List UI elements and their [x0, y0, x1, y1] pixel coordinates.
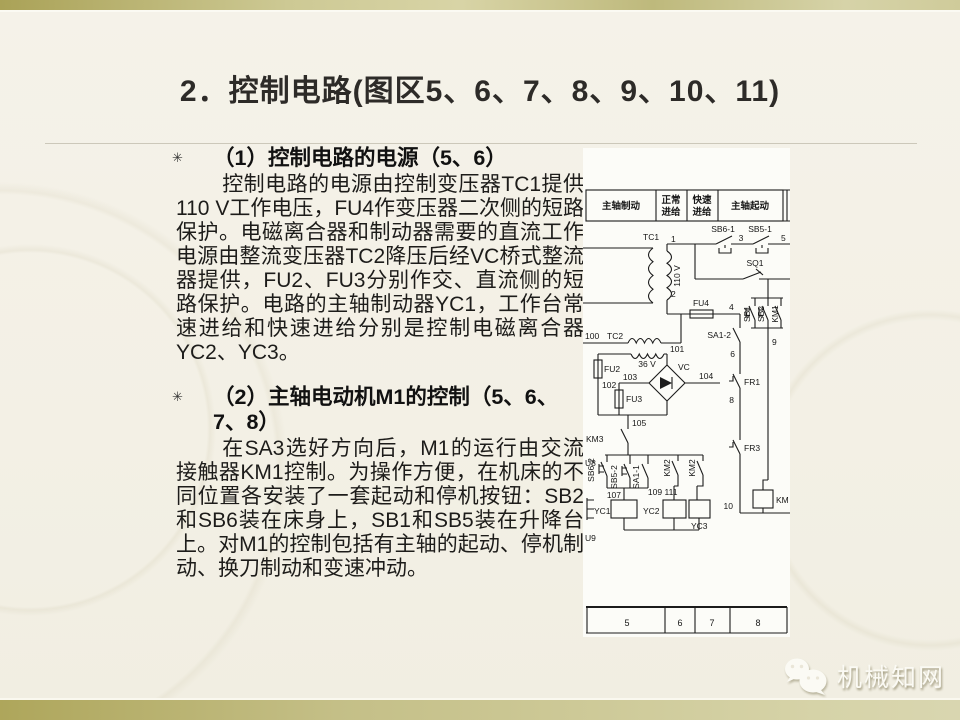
wire-number-6: 6 [730, 349, 735, 359]
zone-header-row: 主轴制动 正常 进给 快速 进给 主轴起动 [586, 190, 790, 221]
wire-number-9: 9 [772, 337, 777, 347]
wire-number-5: 5 [781, 233, 786, 243]
wire-number-109: 109 [648, 487, 662, 497]
wire-number-104: 104 [699, 371, 713, 381]
label-yc2: YC2 [643, 506, 660, 516]
wire-number-102: 102 [602, 380, 616, 390]
header-rapid-feed-line2: 进给 [692, 206, 712, 218]
wire-number-1: 1 [671, 234, 676, 244]
control-circuit-diagram: 主轴制动 正常 进给 快速 进给 主轴起动 TC1 1 2 110 V [583, 148, 790, 637]
label-km3: KM3 [586, 434, 604, 444]
wechat-icon [782, 655, 830, 697]
bullet-marker-icon: ✳ [166, 146, 213, 170]
label-km1: KM1 [770, 305, 780, 323]
zone-5: 5 [624, 618, 629, 628]
wire-number-101: 101 [670, 344, 684, 354]
bottom-accent-band [0, 698, 960, 720]
zone-6: 6 [677, 618, 682, 628]
presentation-slide: 2．控制电路(图区5、6、7、8、9、10、11) ✳ （1）控制电路的电源（5… [0, 0, 960, 720]
bullet-1: ✳ （1）控制电路的电源（5、6） [166, 146, 584, 171]
wire-number-107: 107 [607, 490, 621, 500]
label-sb5-2: SB5-2 [609, 465, 619, 489]
label-fr3: FR3 [744, 443, 760, 453]
brand-watermark: 机械知网 [782, 654, 945, 698]
header-spindle-start: 主轴起动 [731, 200, 770, 212]
label-36v: 36 V [638, 359, 656, 369]
wire-number-105: 105 [632, 418, 646, 428]
wire-number-4: 4 [729, 302, 734, 312]
label-sa1-1: SA1-1 [631, 465, 641, 489]
header-spindle-brake: 主轴制动 [602, 200, 641, 212]
header-normal-feed-line1: 正常 [661, 194, 680, 206]
limit-switch-sq1: SQ1 [695, 244, 790, 279]
title-divider [45, 143, 917, 144]
body-text-column: ✳ （1）控制电路的电源（5、6） 控制电路的电源由控制变压器TC1提供110 … [166, 146, 584, 601]
contact-km3: KM3 105 [586, 415, 646, 455]
clutch-branch-contacts: SB6-2 SB5-2 SA1-1 KM2 KM2 107 109 111 [586, 455, 703, 500]
slide-title: 2．控制电路(图区5、6、7、8、9、10、11) [40, 66, 920, 110]
wire-number-103: 103 [623, 372, 637, 382]
contact-chain-sa1-2-fr1-fr3: SA1-2 6 FR1 8 FR3 [707, 314, 760, 513]
brand-name: 机械知网 [837, 658, 945, 694]
zone-8: 8 [755, 618, 760, 628]
label-sq1: SQ1 [746, 258, 763, 268]
label-sb5-1: SB5-1 [748, 224, 772, 234]
stop-buttons-sb6-1-sb5-1: SB6-1 3 SB5-1 5 [667, 224, 790, 253]
label-sb6-1: SB6-1 [711, 224, 735, 234]
zone-number-strip: 5 6 7 8 [586, 607, 787, 633]
header-rapid-feed-line1: 快速 [692, 194, 712, 206]
label-fu4: FU4 [693, 298, 709, 308]
wire-number-100: 100 [585, 331, 599, 341]
label-vc: VC [678, 362, 690, 372]
label-km: KM [776, 495, 789, 505]
label-110v: 110 V [672, 265, 682, 287]
label-fu2: FU2 [604, 364, 620, 374]
wire-number-8: 8 [729, 395, 734, 405]
top-accent-band [0, 0, 960, 12]
label-yc1: YC1 [594, 506, 611, 516]
label-tc1: TC1 [643, 232, 659, 242]
fuses-fu2-fu3: FU2 102 103 FU3 [594, 354, 667, 415]
bullet-1-heading: （1）控制电路的电源（5、6） [213, 146, 507, 171]
circuit-schematic: 主轴制动 正常 进给 快速 进给 主轴起动 TC1 1 2 110 V [583, 148, 790, 637]
wire-number-3: 3 [739, 233, 744, 243]
bridge-rectifier-vc: VC 104 [649, 362, 720, 415]
bullet-2-body: 在SA3选好方向后，M1的运行由交流接触器KM1控制。为操作方便，在机床的不同位… [176, 437, 584, 581]
label-sb2: SB2 [756, 306, 766, 322]
wire-number-2: 2 [671, 289, 676, 299]
label-km2-b: KM2 [687, 459, 697, 477]
wire-number-10: 10 [724, 501, 734, 511]
bullet-marker-icon: ✳ [166, 385, 213, 409]
bullet-2-heading: （2）主轴电动机M1的控制（5、6、7、8） [213, 385, 584, 435]
zone-7: 7 [709, 618, 714, 628]
wire-number-u9: U9 [585, 533, 596, 543]
label-sb1: SB1 [742, 306, 752, 322]
bullet-1-body: 控制电路的电源由控制变压器TC1提供110 V工作电压，FU4作变压器二次侧的短… [176, 173, 584, 365]
label-sa1-2: SA1-2 [707, 330, 731, 340]
bullet-2: ✳ （2）主轴电动机M1的控制（5、6、7、8） [166, 385, 584, 435]
label-fr1: FR1 [744, 377, 760, 387]
wire-number-u8: U8 [585, 458, 596, 468]
label-fu3: FU3 [626, 394, 642, 404]
label-km2-a: KM2 [662, 459, 672, 477]
label-tc2: TC2 [607, 331, 623, 341]
start-buttons-sb1-sb2-km1: SB1 SB2 KM1 9 [742, 279, 783, 347]
wire-number-111: 111 [665, 487, 678, 497]
header-normal-feed-line2: 进给 [661, 206, 681, 218]
